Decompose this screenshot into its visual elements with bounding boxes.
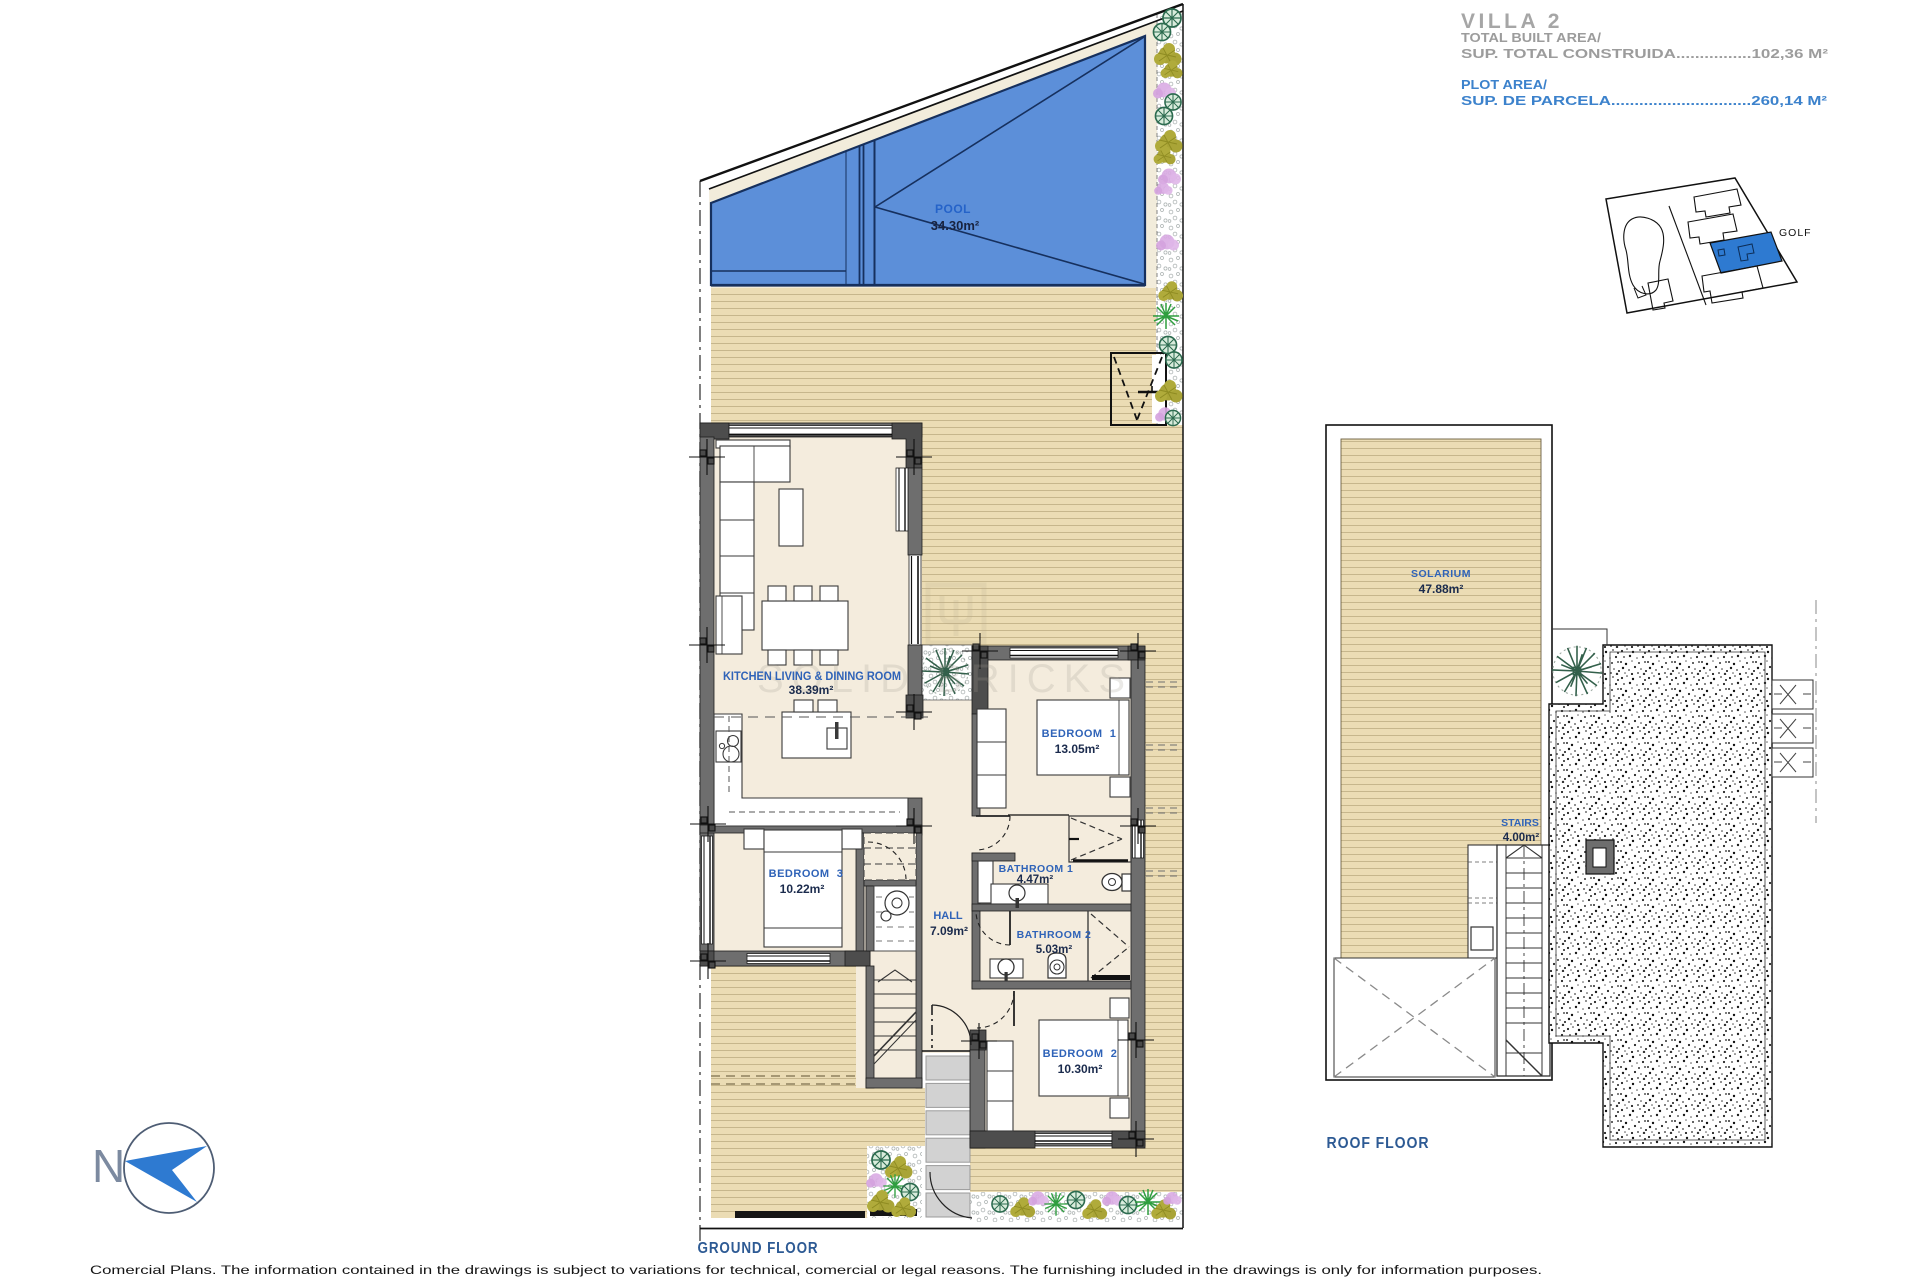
svg-text:13.05m²: 13.05m² — [1055, 742, 1100, 756]
svg-text:STAIRS: STAIRS — [1501, 817, 1539, 829]
svg-text:PLOT AREA/: PLOT AREA/ — [1461, 78, 1548, 92]
svg-text:SOLARIUM: SOLARIUM — [1411, 568, 1471, 580]
svg-text:47.88m²: 47.88m² — [1419, 582, 1464, 596]
svg-text:KITCHEN LIVING & DINING ROOM: KITCHEN LIVING & DINING ROOM — [723, 669, 901, 683]
svg-text:7.09m²: 7.09m² — [930, 924, 968, 938]
svg-text:Comercial Plans. The inform: Comercial Plans. The information contain… — [90, 1263, 1542, 1277]
svg-text:4.47m²: 4.47m² — [1017, 874, 1054, 886]
svg-text:5.03m²: 5.03m² — [1036, 944, 1073, 956]
svg-text:TOTAL BUILT AREA/: TOTAL BUILT AREA/ — [1461, 31, 1602, 45]
svg-text:N: N — [92, 1140, 125, 1192]
svg-text:GROUND FLOOR: GROUND FLOOR — [698, 1240, 819, 1257]
svg-text:BEDROOM 1: BEDROOM 1 — [1042, 728, 1117, 740]
svg-text:4.00m²: 4.00m² — [1503, 832, 1540, 844]
svg-text:VILLA 2: VILLA 2 — [1461, 10, 1563, 33]
svg-text:10.22m²: 10.22m² — [780, 882, 825, 896]
svg-text:10.30m²: 10.30m² — [1058, 1062, 1103, 1076]
svg-text:HALL: HALL — [933, 910, 963, 922]
svg-text:POOL: POOL — [935, 202, 971, 216]
svg-text:SUP. TOTAL CONSTRUIDA.........: SUP. TOTAL CONSTRUIDA................102… — [1461, 47, 1828, 61]
svg-text:BEDROOM 3: BEDROOM 3 — [769, 868, 844, 880]
svg-text:BEDROOM 2: BEDROOM 2 — [1043, 1048, 1118, 1060]
svg-text:GOLF: GOLF — [1779, 227, 1812, 239]
svg-text:ROOF FLOOR: ROOF FLOOR — [1327, 1135, 1430, 1152]
svg-text:BATHROOM 2: BATHROOM 2 — [1017, 929, 1092, 941]
svg-text:34.30m²: 34.30m² — [931, 218, 980, 233]
svg-text:SUP. DE PARCELA...............: SUP. DE PARCELA.........................… — [1461, 94, 1827, 108]
svg-text:38.39m²: 38.39m² — [789, 683, 834, 697]
